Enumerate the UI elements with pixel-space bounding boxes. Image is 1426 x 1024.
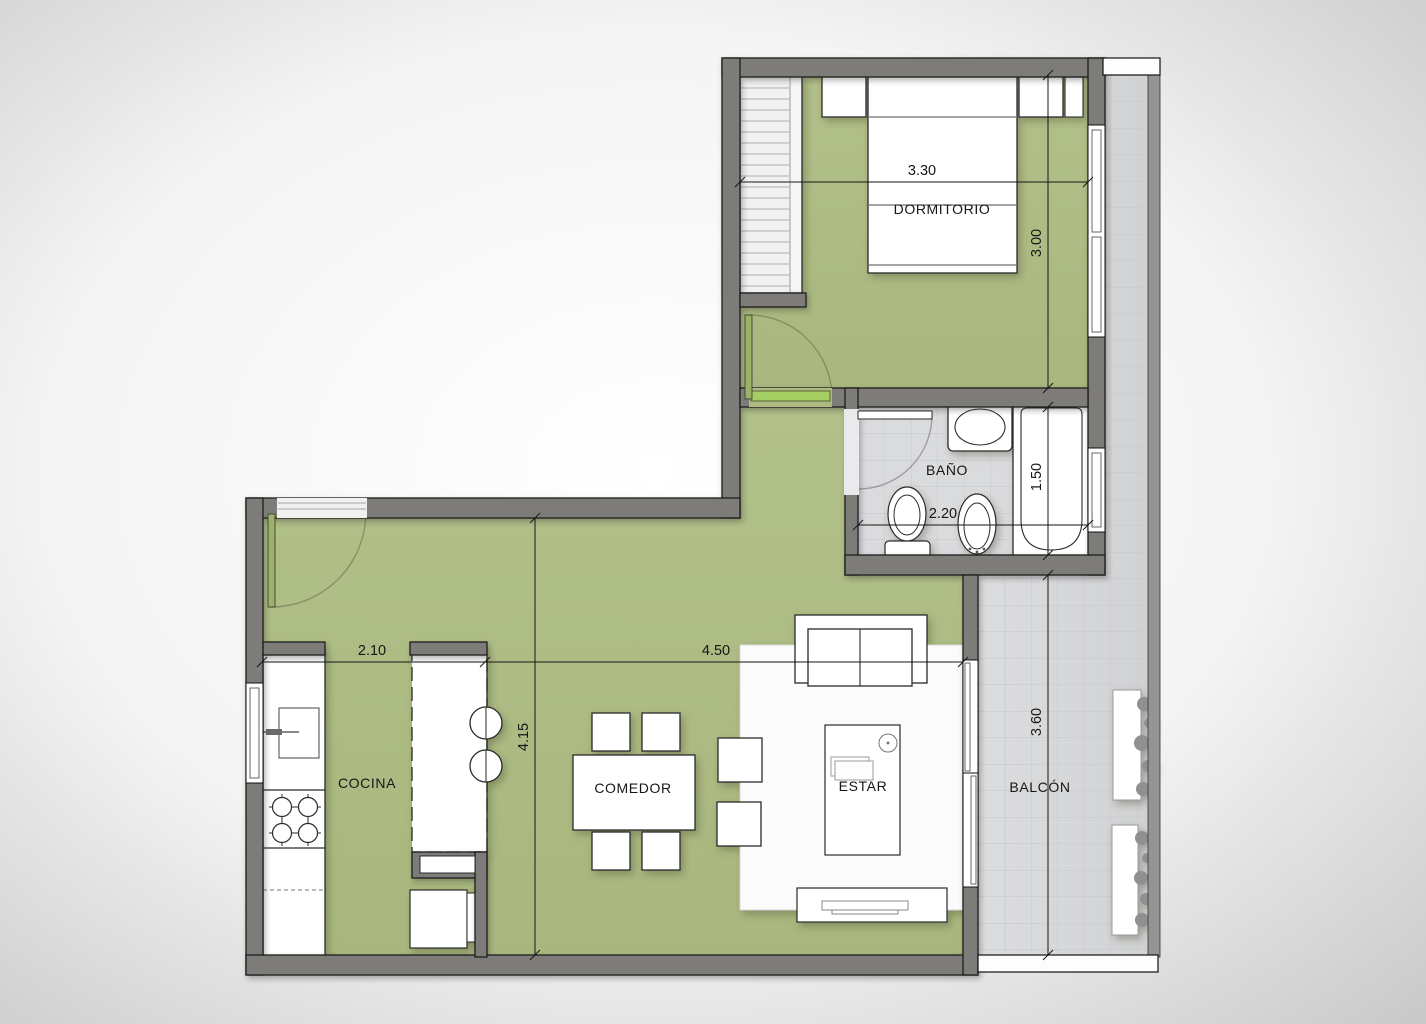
washing-machine <box>410 890 475 948</box>
balcon-depth-dimension: 3.60 <box>1029 708 1045 736</box>
laundry-inset <box>420 856 475 873</box>
comedor-label: COMEDOR <box>594 780 671 796</box>
chair <box>642 713 680 751</box>
dormitorio-threshold <box>751 391 830 401</box>
dormitorio-depth-dimension: 3.00 <box>1029 229 1045 257</box>
bano-label: BAÑO <box>926 462 968 478</box>
wall <box>845 555 1105 575</box>
chair <box>592 713 630 751</box>
bano-door-leaf <box>858 411 932 419</box>
chair <box>592 832 630 870</box>
counter-back-band <box>263 642 325 655</box>
entry-threshold <box>277 498 367 518</box>
nightstand-right <box>1019 75 1063 117</box>
floor-plan-canvas: 3.30 3.00 2.20 1.50 2.10 4.50 4.15 3.60 … <box>0 0 1426 1024</box>
dormitorio-label: DORMITORIO <box>894 201 991 217</box>
bano-window <box>1088 448 1105 532</box>
wall <box>475 852 487 957</box>
wall <box>740 293 806 307</box>
wall <box>246 955 978 975</box>
cocina-label: COCINA <box>338 775 396 791</box>
closet <box>740 76 802 293</box>
bano-width-dimension: 2.20 <box>929 506 957 522</box>
chair <box>642 832 680 870</box>
estar-depth-dimension: 4.15 <box>516 723 532 751</box>
estar-label: ESTAR <box>839 778 888 794</box>
cocina-window <box>246 683 263 783</box>
estar-width-dimension: 4.50 <box>702 643 730 659</box>
kitchen-counter <box>263 653 325 957</box>
tv-console <box>797 888 947 922</box>
balcon-label: BALCÓN <box>1009 779 1070 795</box>
dormitorio-width-dimension: 3.30 <box>908 163 936 179</box>
bathtub <box>1013 401 1090 558</box>
nightstand-left <box>822 75 866 117</box>
island-back-band <box>410 642 487 655</box>
chair <box>717 802 761 846</box>
tv <box>822 901 908 910</box>
wall <box>722 58 740 518</box>
sofa <box>795 615 927 686</box>
wall <box>722 58 1105 77</box>
kitchen-sink <box>279 708 319 758</box>
bano-depth-dimension: 1.50 <box>1029 463 1045 491</box>
dormitorio-door-leaf <box>745 315 752 399</box>
cocina-width-dimension: 2.10 <box>358 643 386 659</box>
faucet <box>266 729 282 735</box>
floor-plan: 3.30 3.00 2.20 1.50 2.10 4.50 4.15 3.60 … <box>0 0 1426 1024</box>
chair <box>718 738 762 782</box>
dormitorio-window <box>1088 125 1105 337</box>
bidet <box>958 494 996 554</box>
entry-door-leaf <box>268 514 275 607</box>
bano-door-opening <box>844 409 859 495</box>
estar-balcony-door <box>963 660 978 887</box>
corner-shelf <box>1065 77 1083 117</box>
